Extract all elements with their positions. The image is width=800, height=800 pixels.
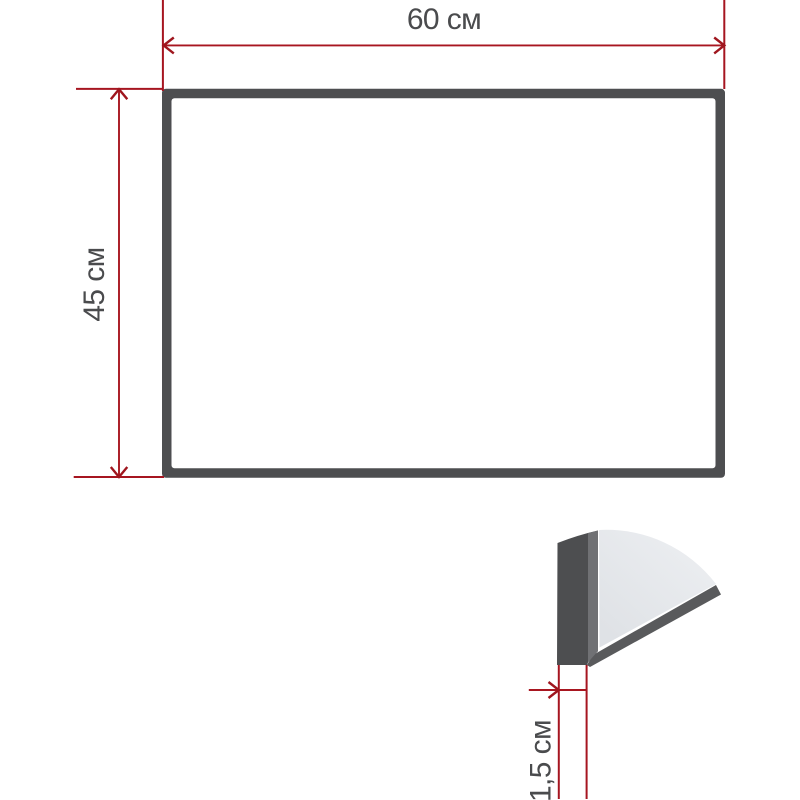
svg-text:45 см: 45 см bbox=[78, 247, 111, 321]
svg-text:1,5 см: 1,5 см bbox=[525, 720, 558, 800]
svg-text:60 см: 60 см bbox=[407, 3, 481, 36]
